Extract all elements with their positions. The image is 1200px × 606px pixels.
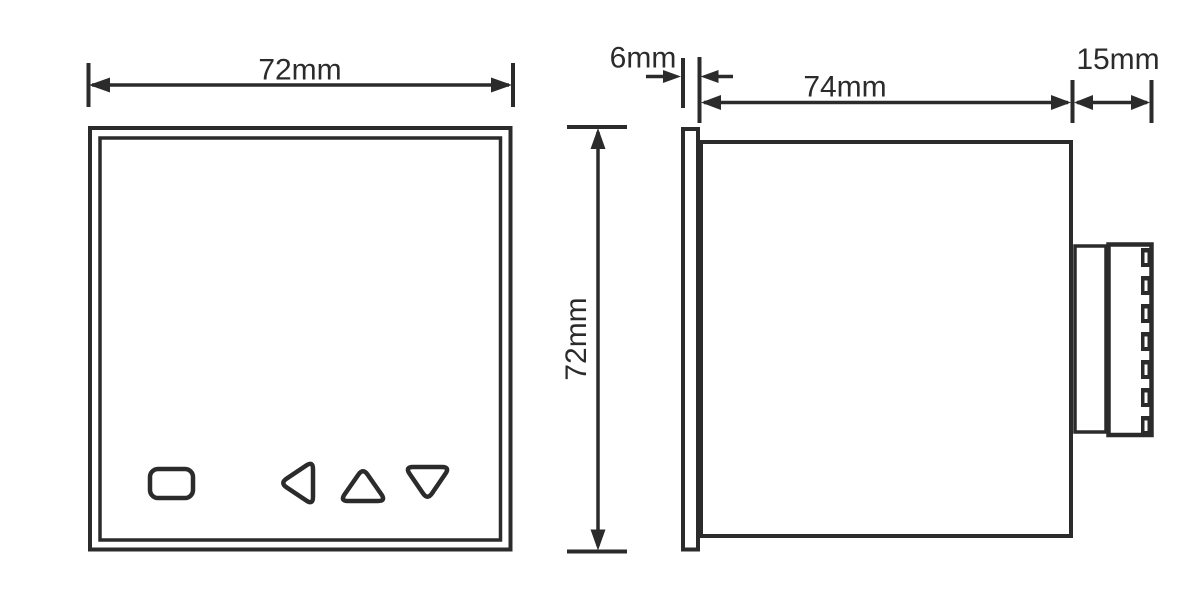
side-view: 72mm 6mm 74mm 15mm: [560, 42, 1160, 552]
front-width-label: 72mm: [258, 54, 341, 87]
body-depth-label: 74mm: [803, 71, 886, 104]
set-button: [150, 469, 193, 498]
terminal-screw: [1141, 416, 1151, 435]
arrowhead-left-icon: [89, 78, 110, 93]
body-depth-dimension: 74mm: [701, 71, 1073, 124]
terminal-screw: [1141, 304, 1151, 323]
device-body-side: [701, 142, 1071, 536]
side-height-dimension: 72mm: [560, 127, 627, 552]
terminal-screw: [1141, 276, 1151, 295]
terminal-screws: [1141, 248, 1151, 435]
dimension-drawing-page: 72mm 72mm 6mm: [0, 0, 1200, 606]
arrowhead-left-icon: [1074, 95, 1093, 110]
terminal-screw: [1141, 248, 1151, 267]
bezel-thickness-label: 6mm: [610, 42, 677, 75]
terminal-block: [1075, 245, 1152, 436]
terminal-screw: [1141, 332, 1151, 351]
front-view: 72mm: [89, 54, 514, 550]
terminal-depth-dimension: 15mm: [1074, 43, 1160, 123]
terminal-screw: [1141, 388, 1151, 407]
arrowhead-down-icon: [591, 530, 606, 551]
bezel-thickness-dimension: 6mm: [610, 42, 733, 124]
front-width-dimension: 72mm: [89, 54, 514, 108]
terminal-depth-label: 15mm: [1076, 43, 1159, 76]
arrowhead-right-icon: [1051, 95, 1071, 110]
terminal-block-base: [1075, 246, 1106, 432]
side-height-label: 72mm: [560, 297, 593, 380]
bezel-panel-side: [683, 129, 698, 550]
panel-meter-dimension-drawing: 72mm 72mm 6mm: [0, 0, 1200, 606]
terminal-screw: [1141, 360, 1151, 379]
arrowhead-right-icon: [491, 78, 512, 93]
arrowhead-up-icon: [591, 128, 606, 149]
arrowhead-left-icon: [701, 95, 721, 110]
arrowhead-right-icon: [1131, 95, 1150, 110]
